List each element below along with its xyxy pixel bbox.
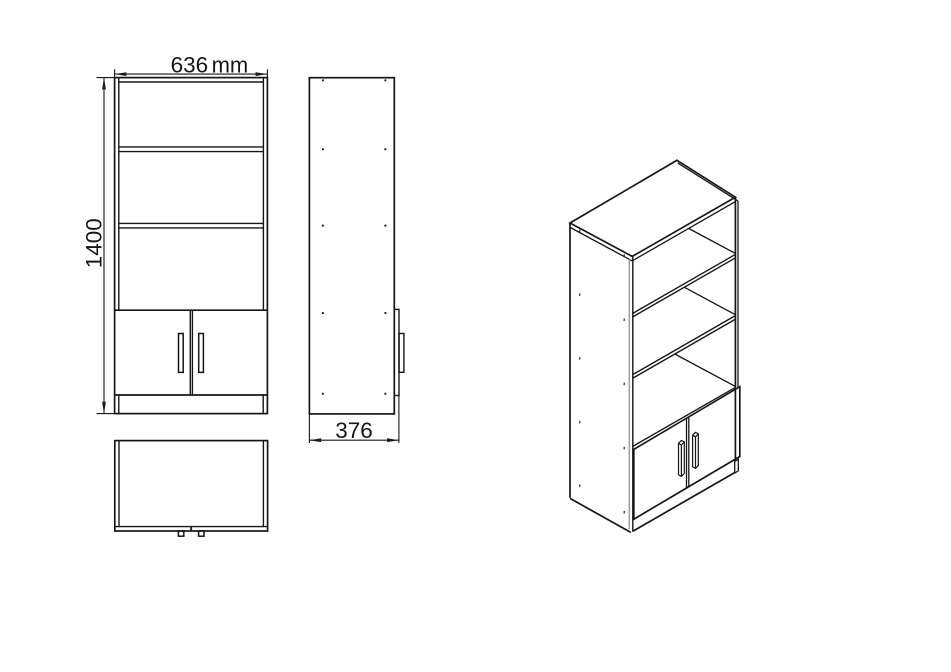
svg-text:mm: mm [212, 52, 249, 77]
svg-text:1400: 1400 [81, 218, 106, 268]
svg-text:636: 636 [171, 52, 209, 77]
svg-text:376: 376 [335, 418, 373, 443]
